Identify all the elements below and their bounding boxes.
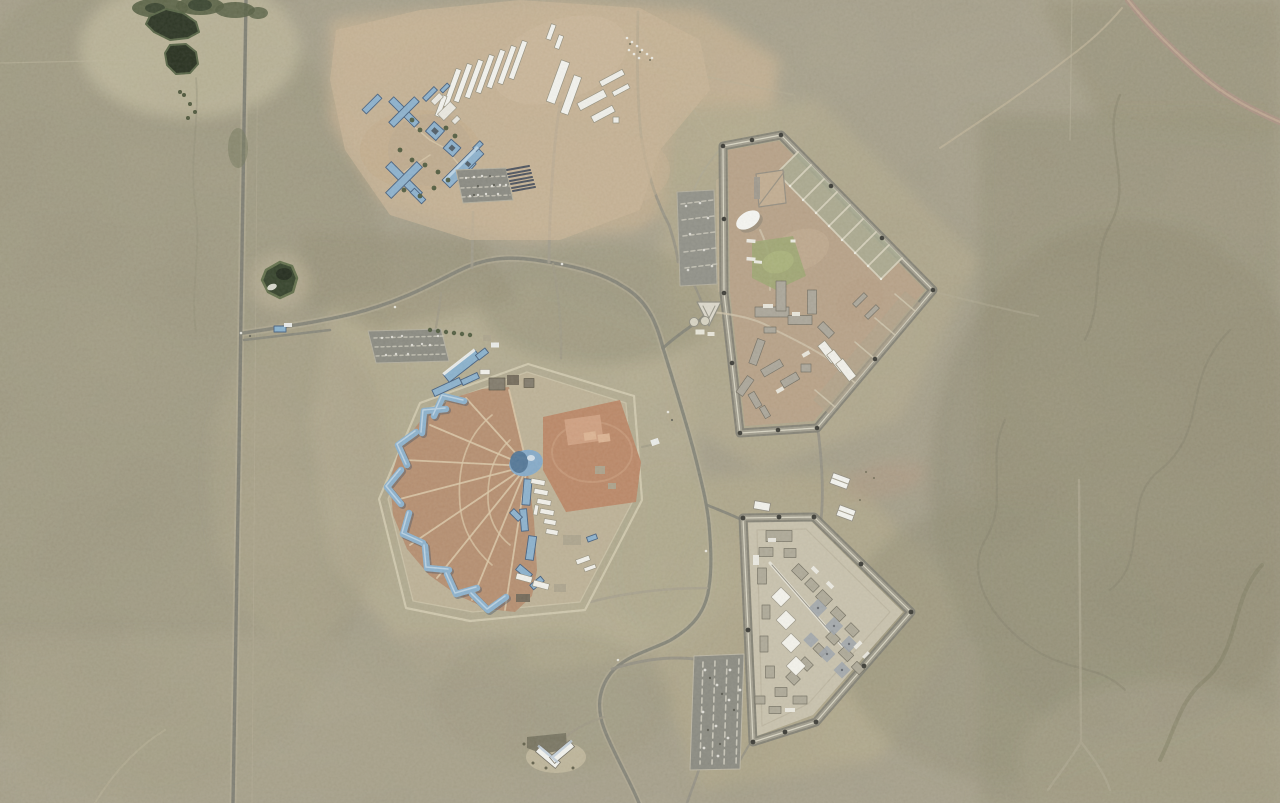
speckle-texture [0,0,1280,803]
satellite-view: Aerial satellite photograph of a desert … [0,0,1280,803]
aerial-photo-svg [0,0,1280,803]
